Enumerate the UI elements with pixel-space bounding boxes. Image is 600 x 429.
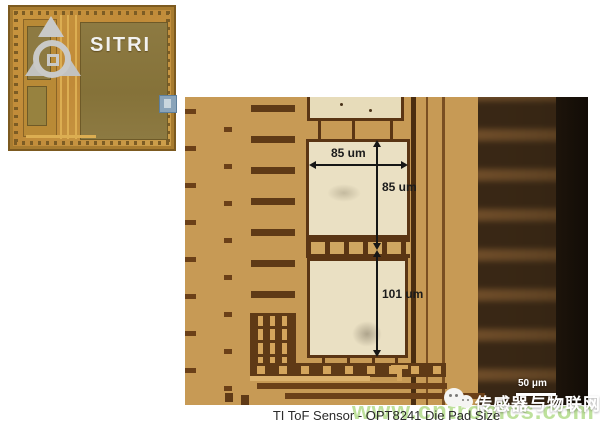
scale-bar-label: 50 μm — [518, 378, 547, 389]
die-edge-shadow — [556, 97, 588, 405]
arrowhead-right-icon — [401, 161, 408, 169]
dimension-arrow-pad2-height — [376, 253, 378, 352]
arrowhead-down-icon — [373, 350, 381, 357]
pad-speck — [369, 109, 372, 112]
arrowhead-down-icon — [373, 243, 381, 250]
arrowhead-left-icon — [309, 161, 316, 169]
pad-speck — [340, 103, 343, 106]
metal-dash-column — [224, 127, 232, 405]
wechat-eye — [462, 399, 464, 401]
die-pad-fringe — [14, 11, 170, 15]
dimension-arrow-pad1-height — [376, 144, 378, 245]
metal-stripe — [250, 376, 370, 381]
out-of-focus-texture — [478, 97, 558, 405]
pad-connector-stub — [390, 121, 393, 139]
dimension-label-pad1-height: 85 um — [382, 180, 417, 194]
metal-rail — [411, 97, 416, 405]
wechat-eye — [449, 394, 452, 397]
figure-page: { "inset": { "logo_text": "SITRI" }, "an… — [0, 0, 600, 429]
die-blue-marker-inner — [164, 99, 171, 108]
pad-connector-ladder — [306, 238, 410, 258]
via-square — [241, 395, 249, 405]
wechat-eye — [467, 399, 469, 401]
bond-pad-101um — [307, 258, 408, 358]
figure-caption: TI ToF Sensor - OPT8241 Die Pad Size — [185, 408, 588, 423]
die-circuit-block — [27, 86, 47, 126]
metal-stripe — [257, 383, 447, 389]
die-blue-marker — [159, 95, 177, 113]
arrowhead-up-icon — [373, 140, 381, 147]
die-pad-fringe — [14, 11, 18, 145]
metal-dash-column — [185, 109, 196, 405]
die-overview-photo: SITRI — [8, 5, 176, 151]
die-trace — [26, 135, 96, 138]
wechat-eye — [455, 394, 458, 397]
pad-connector-stub — [352, 121, 355, 139]
metal-dash-column — [251, 105, 295, 315]
dimension-arrow-pad1-width — [313, 164, 404, 166]
out-of-focus-die-edge — [478, 97, 558, 405]
dimension-label-pad1-width: 85 um — [331, 146, 366, 160]
via-square — [225, 393, 233, 402]
die-pad-fringe — [14, 141, 170, 145]
sitri-logo-text: SITRI — [90, 34, 151, 57]
via-row-band — [250, 363, 446, 377]
sitri-logo-triangle-icon — [38, 16, 64, 37]
sitri-logo-ring-icon — [33, 40, 71, 78]
t-mark — [397, 367, 402, 381]
arrowhead-up-icon — [373, 250, 381, 257]
die-trace — [75, 15, 77, 139]
metal-trace-line — [426, 97, 428, 405]
bond-pad-partial — [307, 97, 404, 121]
dimension-label-pad2-height: 101 um — [382, 287, 423, 301]
wechat-bubble-small — [459, 395, 473, 408]
sitri-logo-square-icon — [47, 54, 59, 66]
die-trace — [67, 15, 69, 139]
die-pad-micrograph: 85 um 85 um 101 um 50 μm — [185, 97, 588, 405]
metal-trace-line — [442, 97, 445, 405]
pad-connector-stub — [318, 121, 321, 139]
